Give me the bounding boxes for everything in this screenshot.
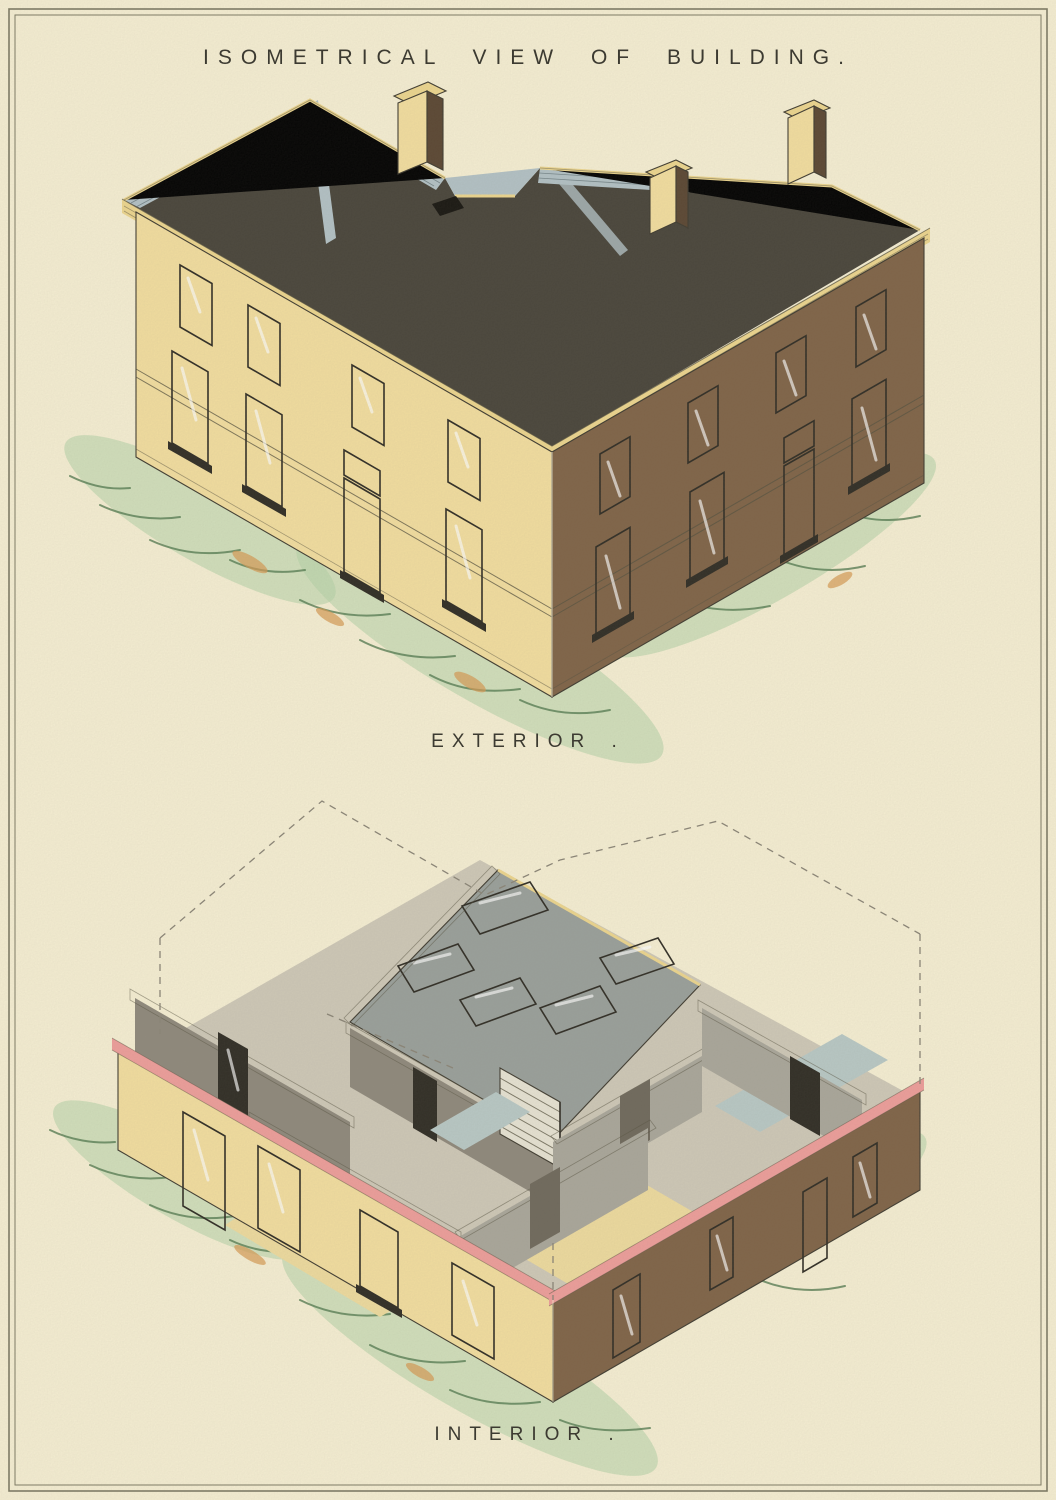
plate-title: ISOMETRICAL VIEW OF BUILDING.	[0, 46, 1056, 70]
exterior-label: EXTERIOR .	[0, 731, 1056, 753]
interior-label: INTERIOR .	[0, 1424, 1056, 1446]
lithograph-plate: ISOMETRICAL VIEW OF BUILDING. EXTERIOR .…	[0, 0, 1056, 1500]
